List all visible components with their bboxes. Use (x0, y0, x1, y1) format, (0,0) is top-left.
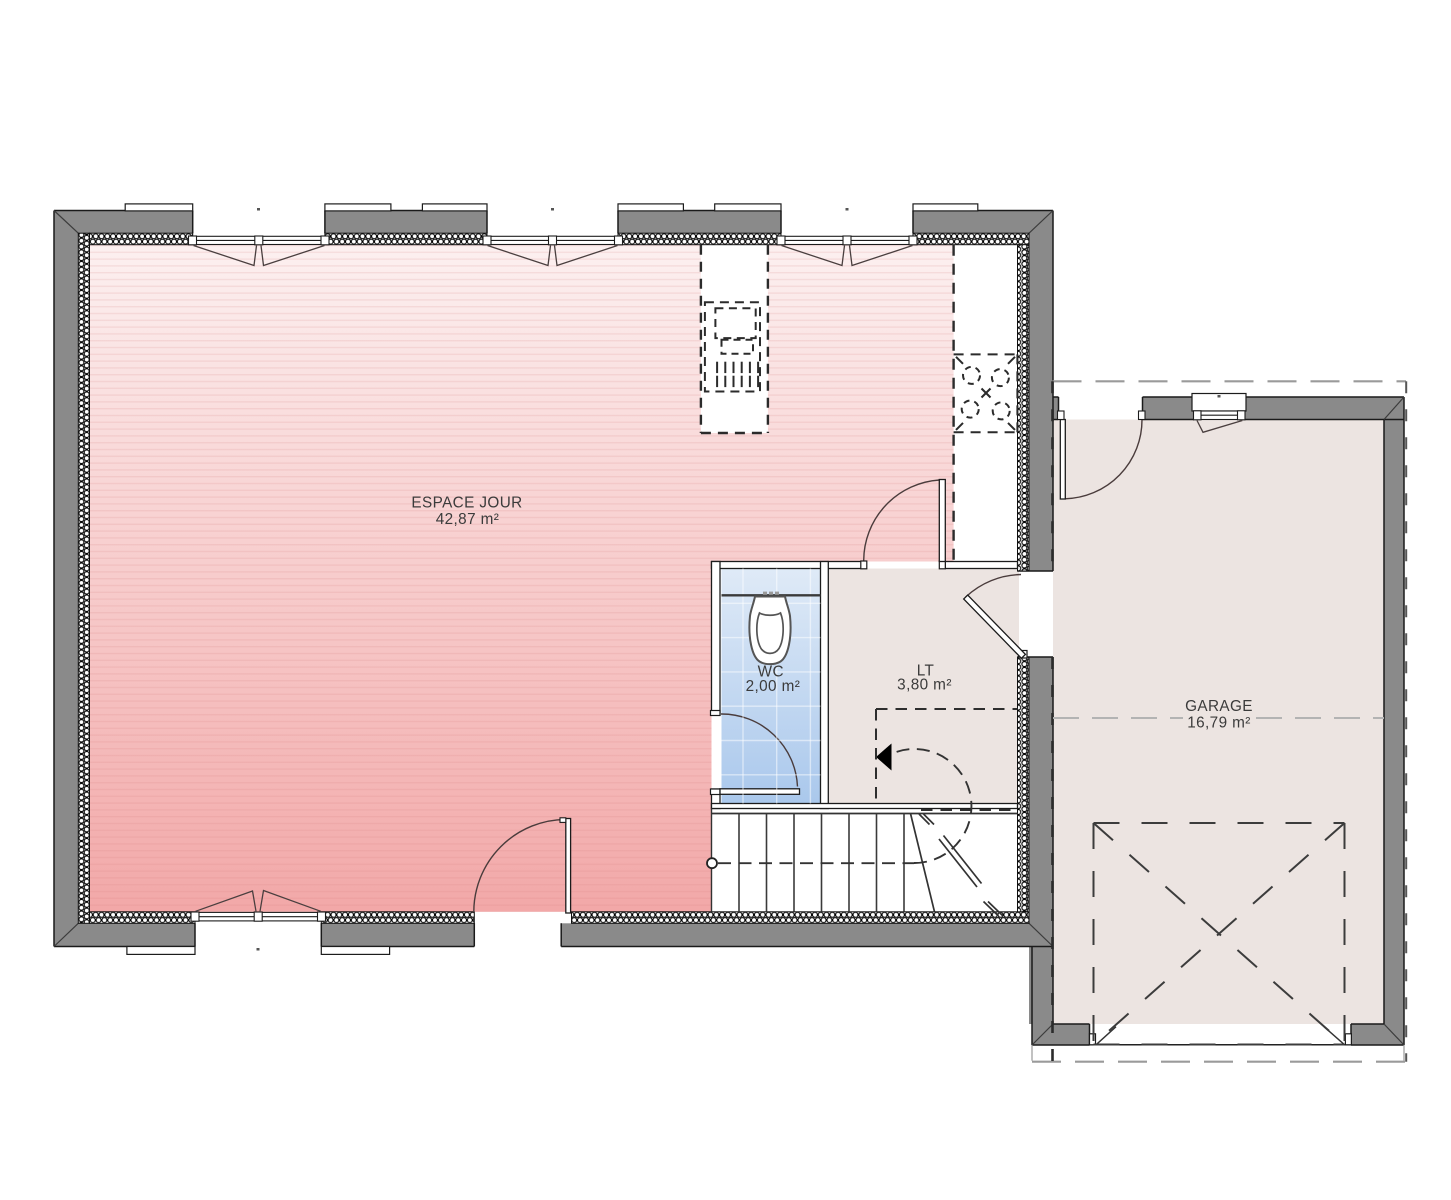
svg-text:GARAGE: GARAGE (1185, 698, 1253, 715)
svg-text:16,79 m²: 16,79 m² (1187, 715, 1251, 732)
svg-text:3,80 m²: 3,80 m² (897, 677, 952, 694)
svg-text:42,87 m²: 42,87 m² (436, 511, 500, 528)
svg-text:ESPACE JOUR: ESPACE JOUR (411, 495, 522, 512)
svg-text:2,00 m²: 2,00 m² (746, 678, 801, 695)
